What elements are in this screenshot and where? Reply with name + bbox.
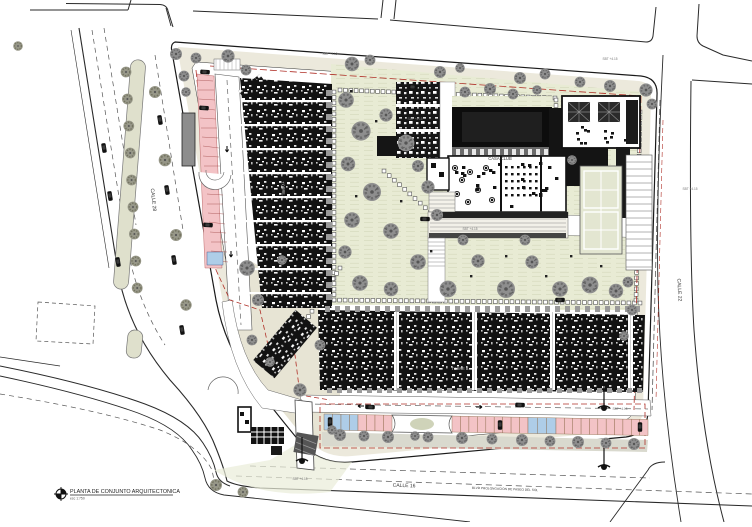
svg-text:SBT +4.15: SBT +4.15 <box>407 117 422 121</box>
svg-text:CALLE 22: CALLE 22 <box>675 278 682 301</box>
svg-text:TORRE B: TORRE B <box>452 367 469 371</box>
svg-text:PLANTA DE CONJUNTO ARQUITECTON: PLANTA DE CONJUNTO ARQUITECTONICA <box>70 489 180 495</box>
svg-text:CALLE 16: CALLE 16 <box>393 483 416 490</box>
svg-text:SBT +4.15: SBT +4.15 <box>602 57 617 61</box>
svg-text:SBT +4.15: SBT +4.15 <box>682 187 697 191</box>
svg-text:esc 1:750: esc 1:750 <box>70 497 85 501</box>
svg-text:SBT +4.15: SBT +4.15 <box>292 477 307 481</box>
svg-text:SBT +4.15: SBT +4.15 <box>462 227 477 231</box>
svg-text:CASA CLUB: CASA CLUB <box>488 156 512 161</box>
svg-text:SBT +4.15: SBT +4.15 <box>612 407 627 411</box>
svg-text:SBT +4.15: SBT +4.15 <box>322 52 337 56</box>
